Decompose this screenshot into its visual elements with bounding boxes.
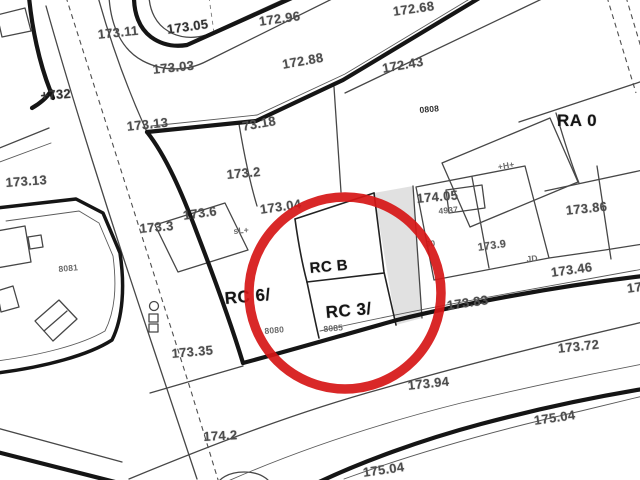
sym-j0-marker: J0	[425, 238, 436, 249]
zone-ra-0: RA 0	[557, 111, 597, 131]
elev-174-05: 174.05	[416, 187, 459, 206]
elev-173-3: 173.3	[139, 218, 174, 236]
map-labels: 173.11173.05172.96172.68172.88172.43173.…	[0, 0, 640, 480]
elev-173-05: 173.05	[166, 16, 209, 37]
elev-173-86: 173.86	[565, 199, 608, 218]
elev-174-2: 174.2	[203, 427, 238, 444]
elev-173-9: 173.9	[477, 238, 507, 254]
elev-173-13-b: 173.13	[5, 172, 48, 190]
elev-172-88: 172.88	[281, 50, 325, 72]
elev-17-cut: 17	[626, 279, 640, 296]
elev-173-03: 173.03	[152, 58, 195, 77]
parcel-8080: 8080	[264, 324, 285, 336]
zone-rc-6: RC 6/	[224, 285, 272, 309]
parcel-8081: 8081	[58, 262, 79, 274]
elev-732: +732	[40, 86, 71, 103]
elev-172-68: 172.68	[392, 0, 435, 19]
elev-173-83: 173.83	[446, 292, 489, 313]
parcel-8085: 8085	[323, 322, 344, 334]
elev-175-04-b: 175.04	[362, 459, 405, 480]
sym-sl-marker: sL+	[233, 225, 249, 236]
elev-172-96: 172.96	[258, 8, 301, 29]
parcel-0808: 0808	[419, 103, 440, 115]
elev-173-46: 173.46	[550, 259, 593, 280]
elev-173-04: 173.04	[259, 196, 302, 217]
elev-172-43: 172.43	[381, 54, 425, 76]
zone-rc-3: RC 3/	[325, 299, 373, 323]
elev-73-18: 73.18	[241, 113, 277, 134]
cadastral-map: 173.11173.05172.96172.68172.88172.43173.…	[0, 0, 640, 480]
elev-173-11: 173.11	[97, 23, 139, 42]
elev-173-6: 173.6	[182, 203, 218, 223]
elev-173-72: 173.72	[557, 337, 600, 356]
zone-rc-b: RC B	[309, 257, 349, 277]
sym-h-marker: +H+	[497, 159, 515, 172]
elev-173-94: 173.94	[407, 374, 450, 393]
sym-jd-marker: JD	[526, 253, 538, 264]
elev-173-13-a: 173.13	[126, 115, 169, 134]
elev-173-2: 173.2	[226, 164, 261, 182]
elev-173-35: 173.35	[171, 342, 214, 361]
elev-175-04-a: 175.04	[533, 407, 576, 428]
parcel-4937: 4937	[438, 204, 459, 216]
